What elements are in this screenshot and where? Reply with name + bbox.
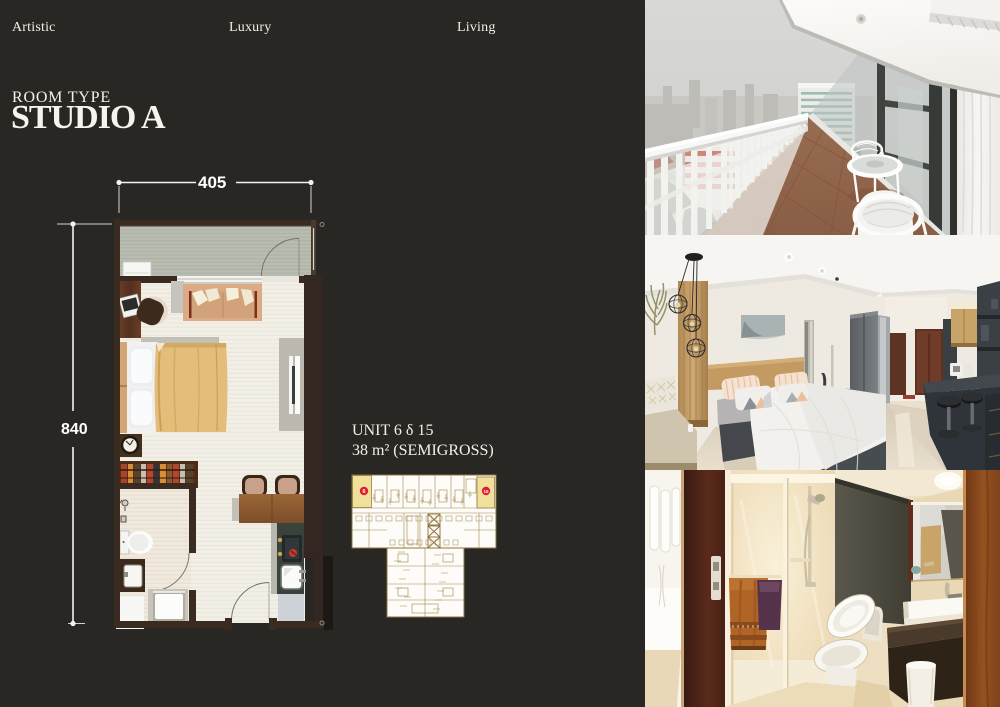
svg-text:15: 15 [483,489,489,494]
svg-text:6: 6 [362,489,365,495]
